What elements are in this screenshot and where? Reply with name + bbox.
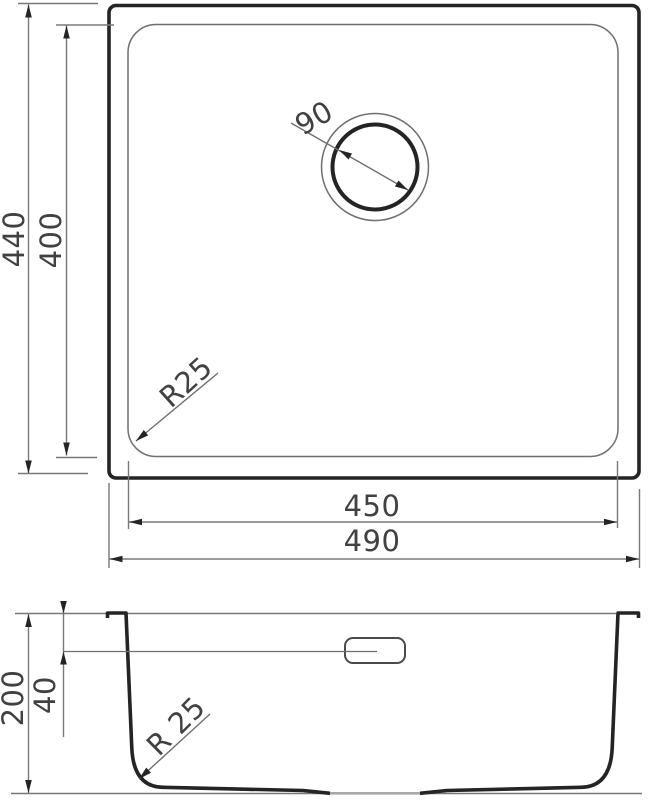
label-overflow-offset: 40	[28, 676, 62, 714]
arrow-200-top	[25, 614, 32, 627]
label-basin-height: 400	[34, 212, 68, 269]
label-overall-height: 440	[0, 211, 31, 268]
arrow-490-right	[626, 556, 639, 563]
drawing-canvas: 440 400 90 R25 450 490	[0, 0, 649, 800]
arrow-440-top	[25, 5, 32, 18]
arrow-400-top	[63, 26, 70, 39]
arrow-490-left	[110, 556, 123, 563]
section-view: 200 40 R 25	[0, 601, 642, 794]
sink-outer-outline	[109, 6, 639, 479]
arrow-440-bottom	[25, 461, 32, 474]
overflow-box	[345, 638, 405, 663]
arrow-450-right	[604, 519, 617, 526]
label-bottom-radius: R 25	[140, 690, 212, 762]
label-overall-width: 490	[344, 524, 401, 558]
label-basin-width: 450	[344, 489, 401, 523]
technical-drawing: 440 400 90 R25 450 490	[0, 0, 649, 800]
bowl-profile-left	[108, 613, 331, 793]
bowl-profile-right	[420, 613, 639, 793]
label-depth: 200	[0, 670, 30, 727]
arrow-40-upper	[60, 601, 67, 614]
arrow-400-bottom	[63, 443, 70, 456]
arrow-450-left	[129, 519, 142, 526]
arrow-40-lower	[60, 652, 67, 665]
arrow-200-bottom	[25, 780, 32, 793]
top-view: 440 400 90 R25 450 490	[0, 4, 640, 569]
